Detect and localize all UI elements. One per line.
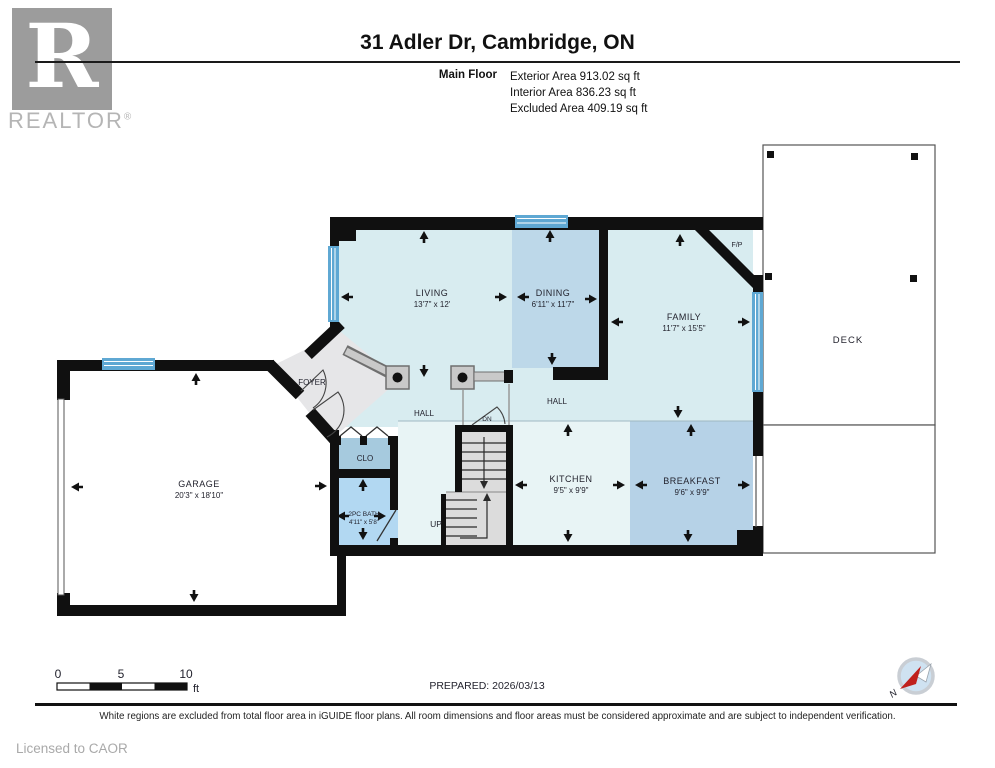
fireplace-label: F/P <box>732 242 743 249</box>
dining-dims: 6'11" x 11'7" <box>532 300 575 309</box>
disclaimer-text: White regions are excluded from total fl… <box>0 711 995 722</box>
deck-region <box>763 145 935 553</box>
scale-tick-10: 10 <box>179 667 193 681</box>
compass-icon: N <box>888 659 933 700</box>
scale-unit: ft <box>193 683 199 695</box>
dining-window <box>515 215 568 228</box>
breakfast-dims: 9'6" x 9'9" <box>675 488 710 497</box>
bath-dims: 4'11" x 5'8" <box>349 519 379 526</box>
hall-label: HALL <box>414 409 435 418</box>
scale-tick-5: 5 <box>118 667 125 681</box>
breakfast-label: BREAKFAST <box>663 476 721 486</box>
deck-label: DECK <box>833 335 863 346</box>
kitchen-dims: 9'5" x 9'9" <box>554 486 589 495</box>
family-dims: 11'7" x 15'5" <box>662 324 705 333</box>
deck-post <box>767 151 774 158</box>
prepared-date: PREPARED: 2026/03/13 <box>429 680 545 692</box>
dining-label: DINING <box>536 288 571 298</box>
bath-label: 2PC BATH <box>348 511 380 518</box>
scale-bar: 0 5 10 ft <box>55 667 199 695</box>
garage-label: GARAGE <box>178 479 220 489</box>
compass-north-label: N <box>888 687 900 700</box>
deck-post <box>765 273 772 280</box>
footer-divider <box>35 703 957 706</box>
floorplan-drawing: LIVING 13'7" x 12' DINING 6'11" x 11'7" … <box>0 0 995 768</box>
hall-label: HALL <box>547 397 568 406</box>
floorplan-page: R REALTOR® 31 Adler Dr, Cambridge, ON Ma… <box>0 0 995 768</box>
garage-dims: 20'3" x 18'10" <box>175 491 223 500</box>
kitchen-label: KITCHEN <box>549 474 592 484</box>
living-dims: 13'7" x 12' <box>414 300 451 309</box>
patio-door <box>752 292 763 392</box>
stairs-up-label: UP <box>430 519 442 529</box>
deck-post <box>911 153 918 160</box>
garage-door <box>58 399 64 595</box>
deck-post <box>910 275 917 282</box>
stairs-dn-label: DN <box>482 416 492 423</box>
living-window <box>328 246 339 322</box>
foyer-label: FOYER <box>298 378 326 387</box>
closet-label: CLO <box>357 454 373 463</box>
license-text: Licensed to CAOR <box>16 741 128 756</box>
closet-bifold-door <box>366 427 388 436</box>
garage-window <box>102 358 155 370</box>
living-label: LIVING <box>416 288 449 298</box>
family-label: FAMILY <box>667 312 701 322</box>
scale-tick-0: 0 <box>55 667 62 681</box>
